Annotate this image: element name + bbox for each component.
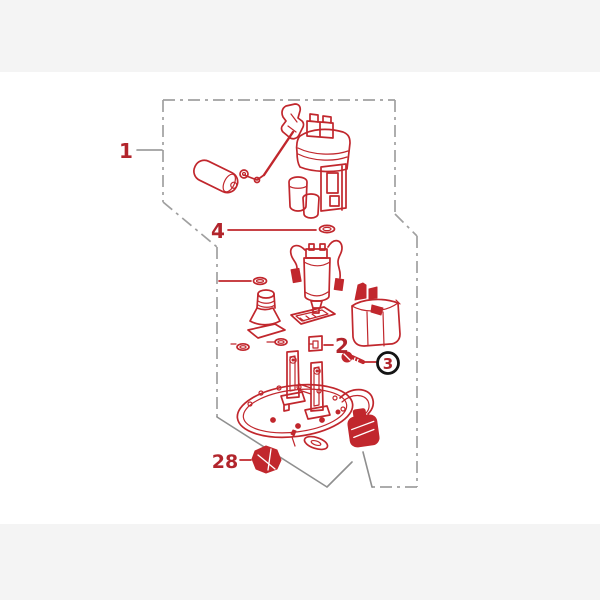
strainer-joint-drawing <box>219 278 285 344</box>
fuel-level-float-drawing <box>191 132 293 196</box>
retainer-clip-drawing <box>309 336 322 351</box>
assembly-boundary <box>163 100 417 487</box>
o-ring-4 <box>320 225 335 232</box>
o-rings-lower <box>237 339 287 350</box>
callout-1[interactable]: 1 <box>119 139 133 163</box>
filter-case-drawing <box>352 283 400 346</box>
pump-module-body-drawing <box>282 104 351 218</box>
callout-3[interactable]: 3 <box>383 355 393 373</box>
mounting-nut-drawing <box>252 446 281 473</box>
parts-diagram: 1 4 2 3 28 <box>0 0 600 600</box>
callout-28[interactable]: 28 <box>212 451 238 473</box>
callout-2[interactable]: 2 <box>335 334 349 358</box>
inner-fuel-pump-drawing <box>291 241 344 324</box>
callout-4[interactable]: 4 <box>211 219 225 243</box>
